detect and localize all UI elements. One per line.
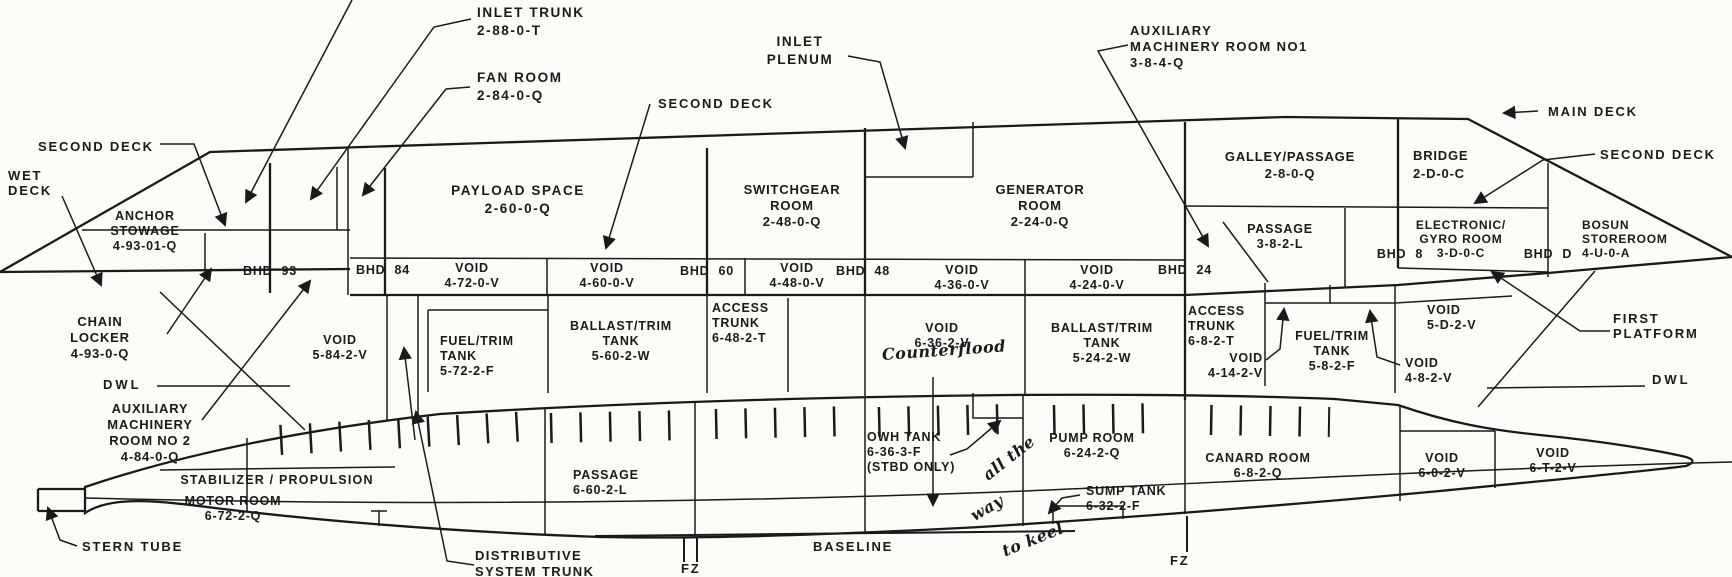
fz-right-label: FZ bbox=[1170, 553, 1189, 568]
owh-tank-arrow bbox=[950, 421, 1000, 455]
inlet-plenum-arrow bbox=[848, 56, 905, 148]
chain-locker-label: CHAIN LOCKER 4-93-0-Q bbox=[70, 314, 130, 362]
ballast-trim-5602-label: BALLAST/TRIMTANK5-60-2-W bbox=[570, 319, 672, 364]
cutoff-leader-arrow bbox=[246, 0, 352, 202]
motor-room-label: MOTOR ROOM6-72-2-Q bbox=[185, 494, 282, 524]
inlet-trunk-arrow bbox=[311, 19, 471, 199]
canard-room-label: CANARD ROOM6-8-2-Q bbox=[1205, 451, 1310, 481]
bhd-60-label: BHD60 bbox=[680, 264, 734, 279]
void-4142-arrow bbox=[1266, 309, 1284, 360]
fuel-trim-5722-label: FUEL/TRIMTANK5-72-2-F bbox=[440, 334, 514, 379]
passage-382l-label: PASSAGE3-8-2-L bbox=[1247, 222, 1313, 252]
stern-tube-arrow bbox=[48, 508, 77, 546]
wet-deck-label: WETDECK bbox=[8, 168, 52, 198]
bhd-24-label: BHD24 bbox=[1158, 263, 1212, 278]
bosun-storeroom-label: BOSUNSTOREROOM4-U-0-A bbox=[1582, 218, 1668, 260]
switchgear-room-label: SWITCHGEARROOM2-48-0-Q bbox=[744, 182, 841, 230]
dwl-right-label: DWL bbox=[1652, 372, 1691, 387]
main-deck-label: MAIN DECK bbox=[1548, 104, 1638, 119]
bhd-d-label: BHDD bbox=[1524, 247, 1572, 262]
chain-locker-arrow bbox=[167, 269, 211, 334]
electronic-gyro-room-label: ELECTRONIC/GYRO ROOM3-D-0-C bbox=[1416, 218, 1506, 260]
generator-room-label: GENERATORROOM2-24-0-Q bbox=[995, 182, 1084, 230]
access-trunk-6482-label: ACCESSTRUNK6-48-2-T bbox=[712, 301, 769, 346]
distributive-system-trunk-label: DISTRIBUTIVE SYSTEM TRUNK bbox=[475, 548, 594, 577]
void-4360-label: VOID4-36-0-V bbox=[934, 263, 989, 293]
sump-tank-label: SUMP TANK6-32-2-F bbox=[1086, 484, 1166, 514]
main-deck-arrow bbox=[1504, 111, 1538, 113]
void-5842-label: VOID5-84-2-V bbox=[312, 333, 367, 363]
bhd-93-label: BHD93 bbox=[243, 264, 297, 279]
galley-passage-label: GALLEY/PASSAGE2-8-0-Q bbox=[1225, 148, 1355, 182]
first-platform-label: FIRSTPLATFORM bbox=[1613, 311, 1699, 341]
void-602-label: VOID6-0-2-V bbox=[1418, 451, 1465, 481]
distributive-trunk-arrow bbox=[416, 412, 474, 565]
inlet-plenum-label: INLETPLENUM bbox=[767, 33, 834, 69]
anchor-stowage-label: ANCHORSTOWAGE4-93-01-Q bbox=[110, 209, 179, 254]
second-deck-center-arrow bbox=[606, 104, 650, 248]
fuel-trim-582-label: FUEL/TRIMTANK5-8-2-F bbox=[1295, 329, 1369, 374]
void-4600-label: VOID4-60-0-V bbox=[579, 261, 634, 291]
frame-tick-marks bbox=[280, 418, 1330, 440]
fan-room-label: FAN ROOM2-84-0-Q bbox=[477, 69, 563, 105]
bhd-48-label: BHD48 bbox=[836, 264, 890, 279]
bhd-84-label: BHD84 bbox=[356, 263, 410, 278]
stern-tube-label: STERN TUBE bbox=[82, 539, 183, 554]
ship-profile-linework bbox=[0, 0, 1732, 577]
second-deck-left-label: SECOND DECK bbox=[38, 139, 154, 154]
passage-6602-label: PASSAGE6-60-2-L bbox=[573, 468, 639, 498]
second-deck-center-label: SECOND DECK bbox=[658, 96, 774, 111]
stabilizer-propulsion-label: STABILIZER / PROPULSION bbox=[180, 473, 373, 488]
void-5d2-label: VOID5-D-2-V bbox=[1427, 303, 1476, 333]
baseline-label: BASELINE bbox=[813, 539, 893, 554]
fz-left-label: FZ bbox=[681, 561, 700, 576]
aux-machinery-room-no2-label: AUXILIARY MACHINERY ROOM NO 2 4-84-0-Q bbox=[107, 401, 192, 465]
void-4142-label: VOID4-14-2-V bbox=[1188, 351, 1263, 381]
void-482-label: VOID4-8-2-V bbox=[1405, 356, 1452, 386]
pump-room-label: PUMP ROOM6-24-2-Q bbox=[1049, 431, 1134, 461]
aux-machinery-room-no1-label: AUXILIARY MACHINERY ROOM NO1 3-8-4-Q bbox=[1130, 23, 1308, 71]
trunk-up-arrow bbox=[404, 348, 415, 440]
ship-profile-diagram: SECOND DECK WETDECK SECOND DECK MAIN DEC… bbox=[0, 0, 1732, 577]
aux-room1-arrow bbox=[1098, 45, 1208, 246]
second-deck-right-arrow bbox=[1475, 154, 1595, 203]
payload-space-label: PAYLOAD SPACE2-60-0-Q bbox=[451, 182, 585, 218]
owh-tank-label: OWH TANK6-36-3-F(STBD ONLY) bbox=[867, 430, 955, 475]
ballast-trim-5242-label: BALLAST/TRIMTANK5-24-2-W bbox=[1051, 321, 1153, 366]
dwl-left-label: DWL bbox=[103, 377, 142, 392]
inlet-trunk-label: INLET TRUNK2-88-0-T bbox=[477, 4, 585, 40]
second-deck-right-label: SECOND DECK bbox=[1600, 147, 1716, 162]
void-6t2-label: VOID6-T-2-V bbox=[1529, 446, 1576, 476]
bridge-label: BRIDGE2-D-0-C bbox=[1413, 147, 1468, 183]
void-4480-label: VOID4-48-0-V bbox=[769, 261, 824, 291]
void-4240-label: VOID4-24-0-V bbox=[1069, 263, 1124, 293]
access-trunk-682-label: ACCESSTRUNK6-8-2-T bbox=[1188, 304, 1245, 349]
aux-room2-arrow bbox=[202, 281, 310, 420]
void-4720-label: VOID4-72-0-V bbox=[444, 261, 499, 291]
